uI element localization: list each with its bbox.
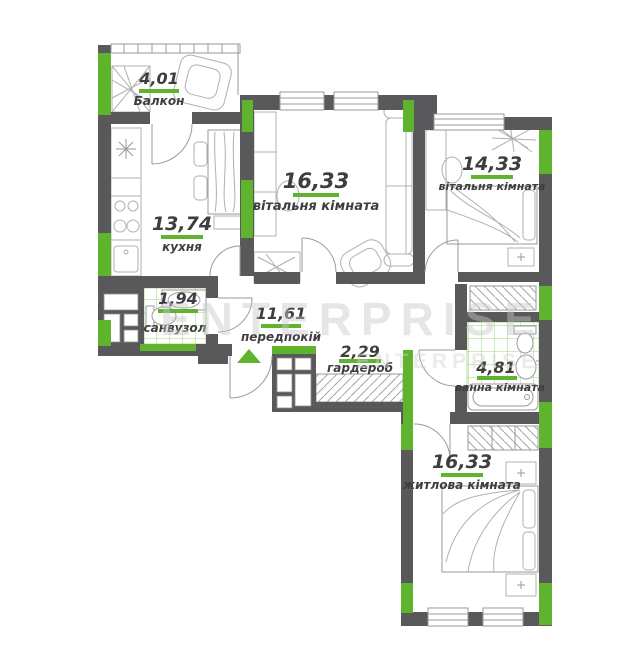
room2-window <box>434 114 504 130</box>
area-bedroom: 16,33 <box>432 451 492 473</box>
floor-plan-page: 4,01 Балкон 13,74 кухня 16,33 вітальня к… <box>0 0 629 670</box>
bedroom-closet-hatch <box>468 426 538 450</box>
bedroom-window-1 <box>428 608 468 626</box>
living-window-1 <box>280 92 324 110</box>
watermark-text-2: ENTERPRISE <box>356 350 540 373</box>
wardrobe-hatch <box>316 374 403 402</box>
entrance-arrow <box>237 349 261 363</box>
door-living <box>302 238 336 272</box>
kitchen-counter <box>111 128 141 276</box>
door-room2 <box>425 240 458 272</box>
bedroom-window-2 <box>483 608 523 626</box>
bedroom-nightstand-bottom <box>506 574 536 596</box>
name-kitchen: кухня <box>162 240 202 254</box>
area-underline <box>161 235 203 239</box>
room2-bed <box>447 186 537 244</box>
watermark-text: ENTERPRISE <box>160 293 544 345</box>
area-underline <box>139 89 179 93</box>
area-balcony: 4,01 <box>138 69 178 88</box>
name-balcony: Балкон <box>134 94 185 108</box>
name-living-room-2: вітальня кімната <box>438 180 545 193</box>
name-bedroom: житлова кімната <box>402 478 521 492</box>
area-kitchen: 13,74 <box>152 213 212 235</box>
label-kitchen: 13,74 кухня <box>152 213 212 254</box>
door-kitchen-hallway <box>210 246 240 276</box>
label-bedroom: 16,33 житлова кімната <box>402 451 521 492</box>
area-underline <box>471 175 513 179</box>
area-underline <box>441 473 483 477</box>
area-living-room: 16,33 <box>283 169 349 193</box>
label-living-room-2: 14,33 вітальня кімната <box>438 153 545 193</box>
name-bathroom: ванна кімната <box>455 381 545 394</box>
room2-nightstand <box>508 248 534 266</box>
area-living-room-2: 14,33 <box>462 153 522 175</box>
label-balcony: 4,01 Балкон <box>134 69 185 108</box>
bedroom-bed <box>442 486 538 572</box>
area-underline <box>293 193 339 197</box>
floor-plan: 4,01 Балкон 13,74 кухня 16,33 вітальня к… <box>0 0 629 670</box>
name-living-room: вітальня кімната <box>253 199 380 214</box>
area-underline <box>477 376 517 380</box>
living-window-2 <box>334 92 378 110</box>
door-balcony-kitchen <box>152 124 192 164</box>
